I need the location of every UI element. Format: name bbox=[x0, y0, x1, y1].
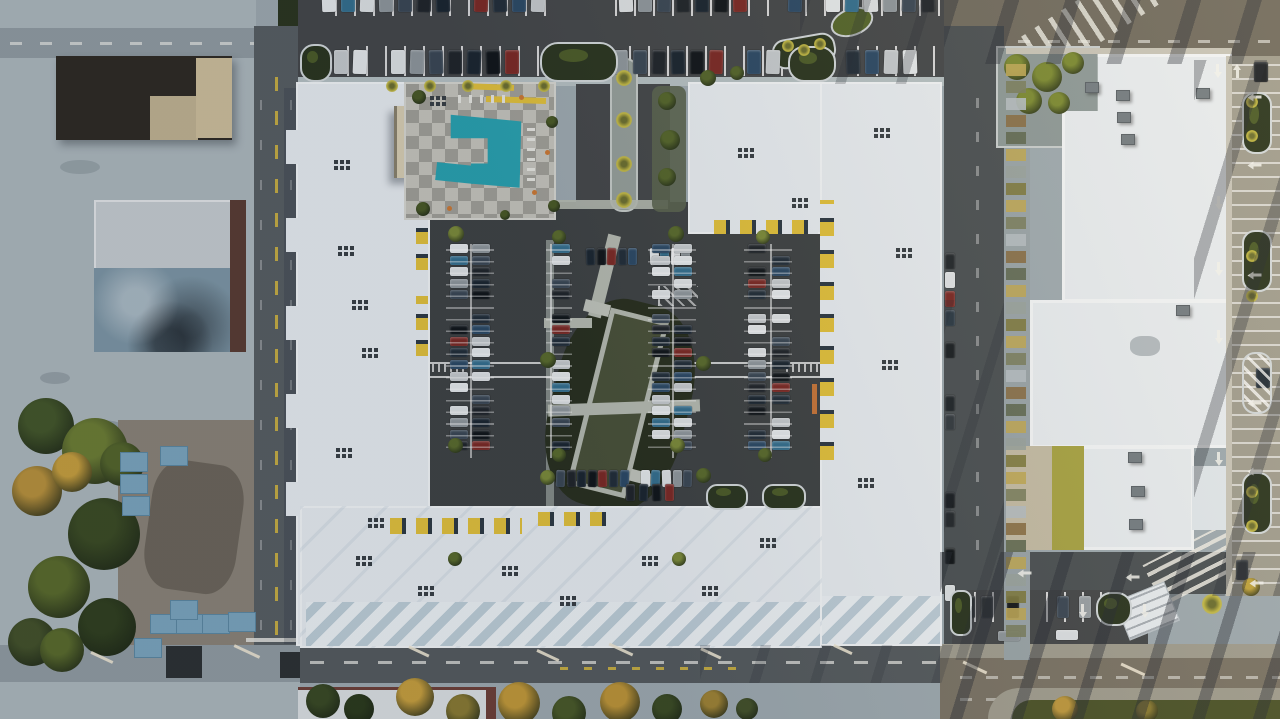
car bbox=[652, 50, 667, 74]
roof-vent bbox=[340, 166, 344, 170]
roof-vent bbox=[424, 586, 428, 590]
roof-vent bbox=[870, 484, 874, 488]
roof-vent bbox=[502, 572, 506, 576]
car bbox=[652, 484, 662, 501]
roof-vent bbox=[766, 538, 770, 542]
roof-smudge bbox=[1130, 336, 1160, 356]
tree bbox=[448, 438, 463, 453]
shadow-bands bbox=[700, 645, 960, 683]
roof-vent bbox=[772, 538, 776, 542]
roof-bay bbox=[286, 306, 298, 340]
tree bbox=[416, 202, 430, 216]
car bbox=[747, 50, 761, 74]
car bbox=[695, 0, 709, 12]
roof-vent bbox=[436, 96, 440, 100]
roof-vent bbox=[804, 198, 808, 202]
parking-stripes bbox=[446, 244, 494, 458]
tree bbox=[658, 168, 676, 186]
roof-vent bbox=[368, 524, 372, 528]
roof-vent bbox=[902, 248, 906, 252]
pool-lounger bbox=[527, 178, 535, 181]
roof-vent bbox=[792, 204, 796, 208]
roof-vent bbox=[572, 602, 576, 606]
car bbox=[577, 470, 586, 487]
roof-vent bbox=[358, 306, 362, 310]
umbrella bbox=[545, 150, 550, 155]
roof-vent bbox=[798, 204, 802, 208]
roof-vent bbox=[714, 592, 718, 596]
roof-vent bbox=[436, 102, 440, 106]
car bbox=[467, 50, 482, 74]
landscape-island bbox=[540, 42, 618, 82]
car bbox=[531, 0, 546, 12]
roof-vent bbox=[508, 566, 512, 570]
car bbox=[505, 50, 519, 74]
roof-vent bbox=[336, 454, 340, 458]
tree bbox=[1048, 92, 1070, 114]
roof-vent bbox=[368, 562, 372, 566]
roof-vent bbox=[340, 160, 344, 164]
roof-vent bbox=[430, 586, 434, 590]
roof-vent bbox=[566, 596, 570, 600]
roof-vent bbox=[350, 252, 354, 256]
tree bbox=[500, 210, 510, 220]
roof-vent bbox=[880, 134, 884, 138]
roof-vent bbox=[804, 204, 808, 208]
roof-vent bbox=[362, 348, 366, 352]
tree bbox=[756, 230, 770, 244]
facade-window bbox=[1006, 183, 1026, 195]
warehouse-roof-tan-step bbox=[150, 96, 198, 140]
car bbox=[766, 50, 781, 74]
car bbox=[673, 470, 682, 487]
roof-vent bbox=[368, 556, 372, 560]
roof-vent bbox=[342, 448, 346, 452]
roof-vent bbox=[766, 544, 770, 548]
shadow-bands bbox=[944, 0, 1280, 64]
car bbox=[733, 0, 748, 12]
roof-vent bbox=[356, 556, 360, 560]
roof-vent bbox=[896, 254, 900, 258]
roof-vent bbox=[744, 154, 748, 158]
shadow-bands bbox=[1194, 60, 1280, 596]
tree bbox=[540, 470, 555, 485]
car bbox=[714, 0, 729, 12]
roof-vent bbox=[338, 246, 342, 250]
roof-vent bbox=[760, 544, 764, 548]
roof-vent bbox=[430, 592, 434, 596]
aerial-photo: Top-down aerial view of a white apartmen… bbox=[0, 0, 1280, 719]
shrub bbox=[559, 49, 589, 62]
roof-vent bbox=[348, 454, 352, 458]
tree bbox=[696, 356, 711, 371]
roof-vent bbox=[514, 566, 518, 570]
roof-vent bbox=[702, 592, 706, 596]
roof-vent bbox=[642, 556, 646, 560]
car bbox=[398, 0, 412, 12]
roof-vent bbox=[888, 366, 892, 370]
car bbox=[626, 484, 635, 501]
swimming-pool-arm bbox=[435, 162, 475, 184]
umbrella bbox=[532, 190, 537, 195]
storage-container bbox=[170, 600, 198, 620]
facade-window bbox=[1006, 115, 1026, 127]
tree bbox=[660, 130, 680, 150]
roof-vent bbox=[864, 478, 868, 482]
roof-vent bbox=[772, 544, 776, 548]
yellow-window-bays bbox=[820, 200, 834, 460]
car bbox=[379, 0, 394, 12]
parking-stripes bbox=[648, 244, 696, 458]
tree bbox=[600, 682, 640, 719]
roof-vent bbox=[882, 366, 886, 370]
roof-vent bbox=[356, 562, 360, 566]
facade-window bbox=[1006, 404, 1026, 416]
roof-vent bbox=[344, 246, 348, 250]
facade-window bbox=[1006, 319, 1026, 331]
roof-vent bbox=[738, 154, 742, 158]
parking-stripes bbox=[744, 244, 792, 458]
roof-vent bbox=[364, 300, 368, 304]
roof-vent bbox=[654, 556, 658, 560]
roof-vent bbox=[336, 448, 340, 452]
tree bbox=[758, 448, 772, 462]
roof-vent bbox=[566, 602, 570, 606]
roof-vent bbox=[654, 562, 658, 566]
palm-tree bbox=[500, 80, 512, 92]
roof-vent bbox=[502, 566, 506, 570]
asphalt-patch bbox=[166, 646, 202, 678]
roof-vent bbox=[648, 556, 652, 560]
car bbox=[633, 50, 647, 74]
car bbox=[474, 0, 489, 12]
car bbox=[322, 0, 337, 12]
pool-lounger bbox=[502, 95, 505, 103]
roof-vent bbox=[880, 128, 884, 132]
roof-vent bbox=[362, 556, 366, 560]
shrub bbox=[716, 488, 731, 496]
roof-vent bbox=[738, 148, 742, 152]
car bbox=[410, 50, 425, 74]
car bbox=[676, 0, 691, 12]
facade-window bbox=[1006, 421, 1026, 433]
roof-vent bbox=[572, 596, 576, 600]
tree bbox=[40, 628, 84, 672]
palm-tree bbox=[616, 192, 632, 208]
palm-tree bbox=[424, 80, 436, 92]
roof-vent bbox=[874, 134, 878, 138]
roof-vent bbox=[342, 454, 346, 458]
facade-window bbox=[1006, 523, 1026, 535]
car bbox=[436, 0, 451, 12]
roof-vent bbox=[798, 198, 802, 202]
roof-vent bbox=[418, 592, 422, 596]
car bbox=[448, 50, 462, 74]
facade-window bbox=[1006, 489, 1026, 501]
facade-window bbox=[1006, 81, 1026, 93]
car bbox=[619, 0, 634, 12]
roof-bay bbox=[286, 130, 298, 164]
roof-vent bbox=[344, 252, 348, 256]
apartment-north-wing-roof bbox=[688, 82, 838, 234]
roof-vent bbox=[642, 562, 646, 566]
pavement-stain bbox=[40, 372, 70, 384]
tree bbox=[448, 552, 462, 566]
palm-tree bbox=[782, 40, 794, 52]
storage-container bbox=[120, 474, 148, 494]
roof-vent bbox=[352, 306, 356, 310]
roof-vent bbox=[380, 518, 384, 522]
tree bbox=[552, 696, 586, 719]
storage-container bbox=[202, 614, 230, 634]
car bbox=[586, 248, 596, 265]
facade-window bbox=[1006, 387, 1026, 399]
storage-container bbox=[120, 452, 148, 472]
roof-vent bbox=[560, 602, 564, 606]
hvac-unit bbox=[1085, 82, 1099, 93]
car bbox=[493, 0, 508, 12]
tree bbox=[548, 200, 560, 212]
facade-window bbox=[1006, 268, 1026, 280]
street-left-yellow-line bbox=[275, 60, 278, 635]
facade-window bbox=[1006, 472, 1026, 484]
roof-vent bbox=[886, 134, 890, 138]
palm-tree bbox=[616, 112, 632, 128]
tree bbox=[1032, 62, 1062, 92]
hvac-unit bbox=[1129, 519, 1143, 530]
yellow-window-bays bbox=[416, 296, 428, 356]
roof-vent bbox=[858, 478, 862, 482]
industrial-roof-lower bbox=[94, 268, 232, 352]
tree bbox=[448, 226, 464, 242]
storage-container bbox=[134, 638, 162, 658]
roof-vent bbox=[346, 166, 350, 170]
pool-lounger bbox=[527, 168, 535, 171]
car bbox=[607, 248, 617, 265]
tree bbox=[700, 70, 716, 86]
landscape-island bbox=[300, 44, 332, 82]
roof-vent bbox=[368, 518, 372, 522]
yellow-window-bays bbox=[390, 518, 522, 534]
facade-window bbox=[1006, 98, 1026, 110]
pool-lounger bbox=[480, 95, 483, 103]
roof-vent bbox=[368, 348, 372, 352]
roof-vent bbox=[702, 586, 706, 590]
roof-vent bbox=[508, 572, 512, 576]
pool-lounger bbox=[527, 128, 535, 131]
car bbox=[588, 470, 598, 487]
tree bbox=[552, 448, 566, 462]
facade-window bbox=[1006, 302, 1026, 314]
roof-vent bbox=[896, 248, 900, 252]
roof-vent bbox=[346, 160, 350, 164]
concrete-bottom-left bbox=[0, 682, 300, 719]
roof-vent bbox=[514, 572, 518, 576]
roof-vent bbox=[334, 166, 338, 170]
roof-vent bbox=[374, 524, 378, 528]
shadow-bands bbox=[800, 0, 944, 84]
roof-vent bbox=[424, 592, 428, 596]
roof-vent bbox=[908, 254, 912, 258]
roof-vent bbox=[362, 562, 366, 566]
roof-vent bbox=[362, 354, 366, 358]
roof-vent bbox=[750, 154, 754, 158]
roof-vent bbox=[350, 246, 354, 250]
industrial-roof-upper bbox=[94, 200, 232, 270]
facade-window bbox=[1006, 336, 1026, 348]
tree bbox=[78, 598, 136, 656]
roof-bay bbox=[286, 482, 298, 516]
roof-vent bbox=[870, 478, 874, 482]
roof-vent bbox=[368, 354, 372, 358]
car bbox=[486, 50, 501, 74]
car bbox=[512, 0, 526, 12]
roof-vent bbox=[358, 300, 362, 304]
tree bbox=[396, 678, 434, 716]
tree bbox=[546, 116, 558, 128]
car bbox=[609, 470, 618, 487]
hvac-unit bbox=[1131, 486, 1145, 497]
roof-vent bbox=[560, 596, 564, 600]
shed-red-wall bbox=[486, 687, 496, 719]
apartment-east-wing-roof bbox=[820, 82, 942, 646]
hvac-unit bbox=[1128, 452, 1142, 463]
roof-vent bbox=[374, 354, 378, 358]
tree bbox=[670, 438, 685, 453]
palm-tree bbox=[616, 156, 632, 172]
roof-bay bbox=[286, 218, 298, 252]
roof-vent bbox=[430, 102, 434, 106]
car bbox=[690, 50, 704, 74]
shrub bbox=[307, 51, 318, 63]
roof-bay bbox=[286, 394, 298, 428]
roof-vent bbox=[882, 360, 886, 364]
roof-vent bbox=[374, 348, 378, 352]
roof-vent bbox=[708, 586, 712, 590]
palm-tree bbox=[386, 80, 398, 92]
car bbox=[597, 248, 606, 265]
car bbox=[341, 0, 355, 12]
pool-lounger bbox=[527, 148, 535, 151]
facade-window bbox=[1006, 370, 1026, 382]
brick-wall-edge bbox=[230, 200, 246, 352]
facade-window bbox=[1006, 166, 1026, 178]
palm-tree bbox=[616, 70, 632, 86]
tree bbox=[344, 694, 374, 719]
car bbox=[429, 50, 444, 74]
roof-vent bbox=[348, 448, 352, 452]
orange-accent-wall bbox=[812, 384, 817, 414]
sawtooth-roof-edge bbox=[822, 596, 940, 644]
tree bbox=[700, 690, 728, 718]
roof-vent bbox=[864, 484, 868, 488]
hvac-unit bbox=[1117, 112, 1131, 123]
pavement-stain bbox=[60, 160, 100, 174]
roof-vent bbox=[714, 586, 718, 590]
tree bbox=[540, 352, 556, 368]
roof-vent bbox=[792, 198, 796, 202]
tree bbox=[412, 90, 426, 104]
roof-vent bbox=[364, 306, 368, 310]
facade-window bbox=[1006, 506, 1026, 518]
facade-window bbox=[1006, 149, 1026, 161]
pool-lounger bbox=[527, 158, 535, 161]
car bbox=[683, 470, 693, 487]
tree bbox=[28, 556, 90, 618]
car bbox=[638, 0, 652, 12]
pool-lounger bbox=[527, 138, 535, 141]
car bbox=[598, 470, 608, 487]
facade-window bbox=[1006, 64, 1026, 76]
roof-vent bbox=[894, 366, 898, 370]
storage-container bbox=[228, 612, 256, 632]
roof-vent bbox=[750, 148, 754, 152]
car bbox=[360, 0, 375, 12]
umbrella bbox=[447, 206, 452, 211]
umbrella bbox=[519, 95, 524, 100]
facade-window bbox=[1006, 285, 1026, 297]
facade-window bbox=[1006, 251, 1026, 263]
hvac-unit bbox=[1121, 134, 1135, 145]
roof-vent bbox=[374, 518, 378, 522]
car bbox=[417, 0, 432, 12]
tree bbox=[730, 66, 744, 80]
facade-window bbox=[1006, 353, 1026, 365]
car bbox=[353, 50, 368, 74]
roof-vent bbox=[380, 524, 384, 528]
car bbox=[556, 470, 566, 487]
car bbox=[657, 0, 672, 12]
facade-window bbox=[1006, 455, 1026, 467]
car bbox=[671, 50, 686, 74]
facade-window bbox=[1006, 438, 1026, 450]
palm-tree bbox=[538, 80, 550, 92]
warehouse-roof-tan bbox=[196, 58, 232, 138]
car bbox=[665, 484, 674, 501]
roof-vent bbox=[874, 128, 878, 132]
tree bbox=[498, 682, 540, 719]
tree bbox=[306, 684, 340, 718]
facade-window bbox=[1006, 234, 1026, 246]
hvac-unit bbox=[1116, 90, 1130, 101]
car bbox=[566, 470, 576, 487]
yellow-window-bays bbox=[538, 512, 610, 526]
car bbox=[618, 248, 628, 265]
roof-vent bbox=[902, 254, 906, 258]
shadow-bands bbox=[940, 552, 1280, 719]
storage-container bbox=[122, 496, 150, 516]
roof-vent bbox=[886, 128, 890, 132]
roof-vent bbox=[352, 300, 356, 304]
tree bbox=[652, 694, 682, 719]
facade-window bbox=[1006, 217, 1026, 229]
car bbox=[334, 50, 348, 74]
roof-vent bbox=[334, 160, 338, 164]
storage-container bbox=[160, 446, 188, 466]
car bbox=[639, 484, 649, 501]
car bbox=[945, 272, 955, 288]
roof-vent bbox=[430, 96, 434, 100]
facade-window bbox=[1006, 132, 1026, 144]
pool-lounger bbox=[491, 95, 494, 103]
roof-vent bbox=[442, 102, 446, 106]
roof-vent bbox=[760, 538, 764, 542]
roof-olive-strip bbox=[1052, 446, 1084, 550]
tree bbox=[52, 452, 92, 492]
tree bbox=[672, 552, 686, 566]
tree bbox=[736, 698, 758, 719]
car bbox=[945, 253, 955, 269]
